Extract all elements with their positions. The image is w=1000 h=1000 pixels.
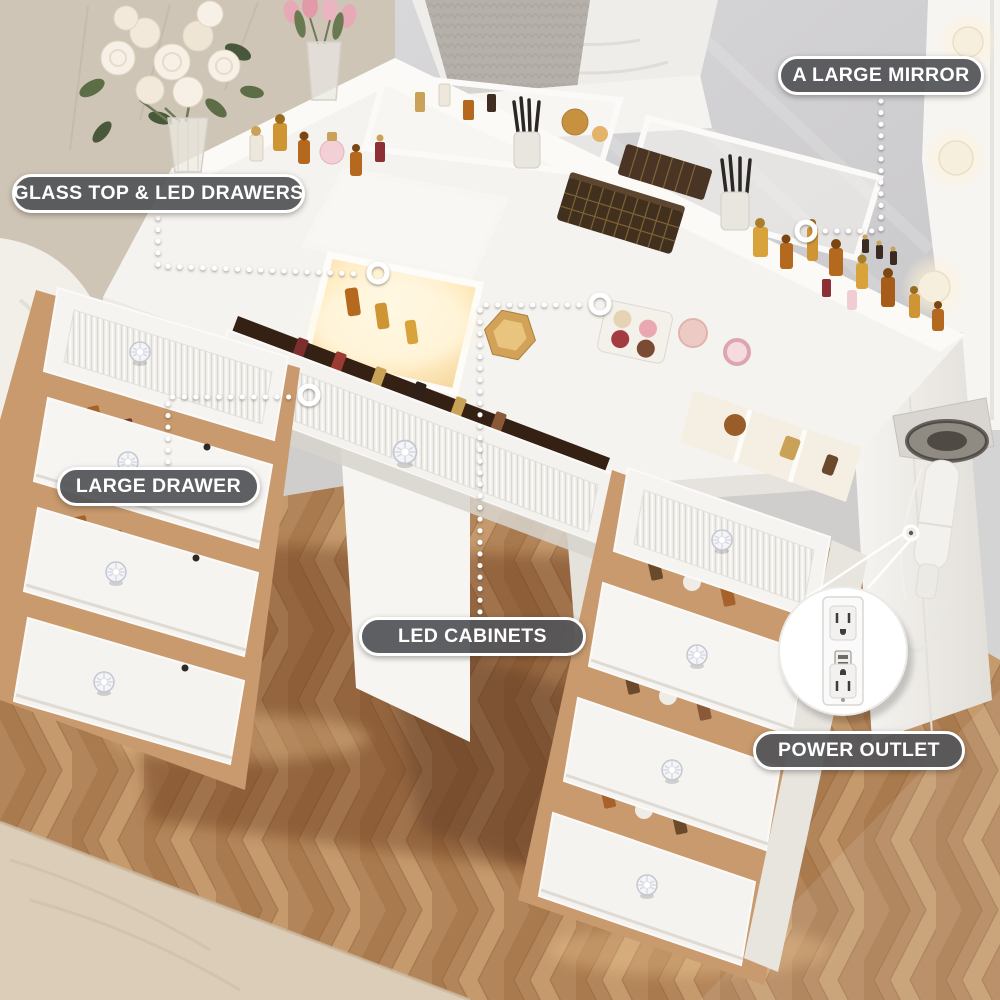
screw-hole xyxy=(182,665,189,672)
bud-vase xyxy=(307,42,341,100)
screw-hole xyxy=(193,555,200,562)
pink-compact xyxy=(725,340,749,364)
callout-large-mirror: A LARGE MIRROR xyxy=(778,56,984,95)
led-bulb-icon xyxy=(918,271,950,303)
callout-large-mirror-label: A LARGE MIRROR xyxy=(792,66,969,86)
callout-glass-top-led-drawers: GLASS TOP & LED DRAWERS xyxy=(12,174,305,213)
callout-large-drawer: LARGE DRAWER xyxy=(57,467,260,506)
led-bulb-icon xyxy=(939,141,973,175)
led-bulb-icon xyxy=(953,27,983,57)
callout-power-outlet: POWER OUTLET xyxy=(753,731,965,770)
product-feature-image: A LARGE MIRROR GLASS TOP & LED DRAWERS L… xyxy=(0,0,1000,1000)
powder-puff xyxy=(679,319,707,347)
power-outlet-icon xyxy=(823,597,863,705)
callout-power-outlet-label: POWER OUTLET xyxy=(778,741,940,761)
callout-led-cabinets-label: LED CABINETS xyxy=(398,627,547,647)
callout-glass-top-led-drawers-label: GLASS TOP & LED DRAWERS xyxy=(13,184,303,204)
callout-led-cabinets: LED CABINETS xyxy=(359,617,586,656)
callout-large-drawer-label: LARGE DRAWER xyxy=(76,477,241,497)
screw-hole xyxy=(204,444,211,451)
